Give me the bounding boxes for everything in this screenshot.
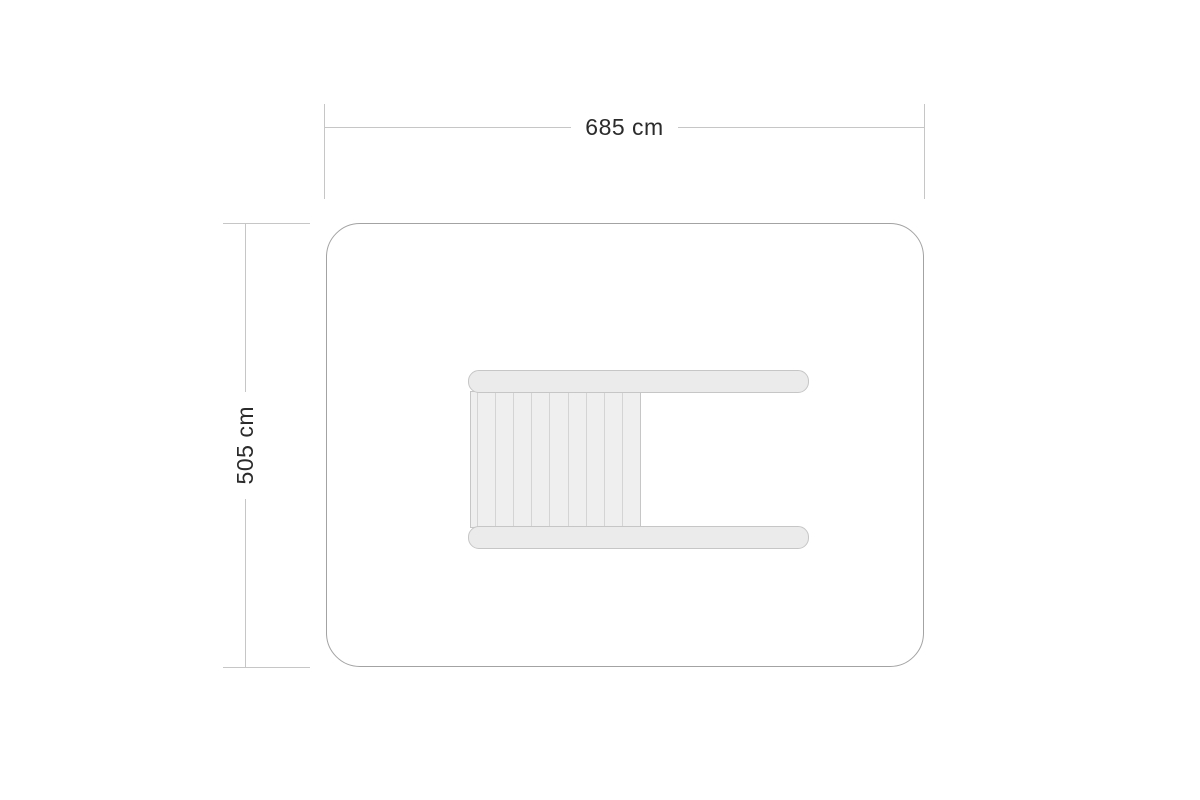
width-dimension-line-right (678, 127, 925, 128)
floor-plan-canvas: 685 cm 505 cm (0, 0, 1200, 800)
furniture-top-rail (468, 370, 809, 393)
furniture-slat (569, 392, 587, 527)
furniture-bottom-rail (468, 526, 809, 549)
height-dimension-line-bottom (245, 499, 246, 668)
height-dimension-line-top (245, 223, 246, 392)
furniture-slat (496, 392, 514, 527)
furniture-slat (587, 392, 605, 527)
furniture-slat (478, 392, 496, 527)
furniture-slat (623, 392, 640, 527)
height-dimension-label: 505 cm (234, 406, 257, 484)
furniture-item[interactable] (468, 370, 809, 549)
furniture-slat (514, 392, 532, 527)
height-dimension: 505 cm (234, 223, 257, 668)
width-dimension-line-left (324, 127, 571, 128)
furniture-slat (550, 392, 568, 527)
width-dimension: 685 cm (324, 115, 925, 139)
furniture-slat-panel (470, 391, 641, 528)
furniture-slat (532, 392, 550, 527)
furniture-slat (471, 392, 478, 527)
furniture-slat (605, 392, 623, 527)
width-dimension-label: 685 cm (585, 116, 663, 139)
